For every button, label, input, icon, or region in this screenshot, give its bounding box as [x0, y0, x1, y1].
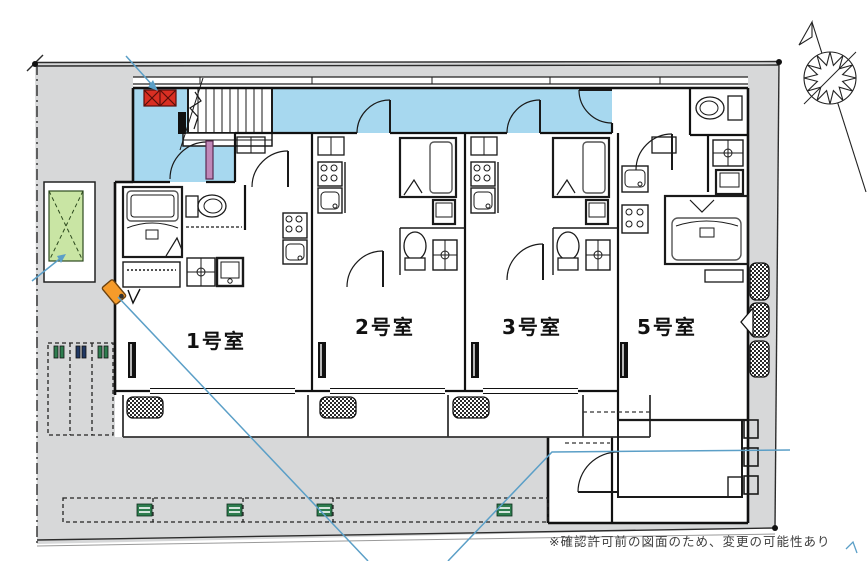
stair-hydrant-box: [178, 112, 186, 134]
meter-box-red: [144, 90, 176, 106]
room-label-2: 2号室: [355, 311, 415, 340]
north-flag-icon: [799, 22, 812, 45]
floor-plan-canvas: 1号室 2号室 3号室 5号室 ※確認許可前の図面のため、変更の可能性あり: [0, 0, 868, 561]
disclaimer-note: ※確認許可前の図面のため、変更の可能性あり: [549, 531, 830, 550]
room-label-3: 3号室: [502, 311, 562, 340]
planting-stall: [44, 182, 95, 282]
entrance-door-purple: [206, 141, 213, 179]
floor-plan-drawing: [0, 0, 868, 561]
room-label-1: 1号室: [186, 325, 246, 354]
north-arrow-compass: [799, 22, 866, 192]
room-label-5: 5号室: [637, 311, 697, 340]
